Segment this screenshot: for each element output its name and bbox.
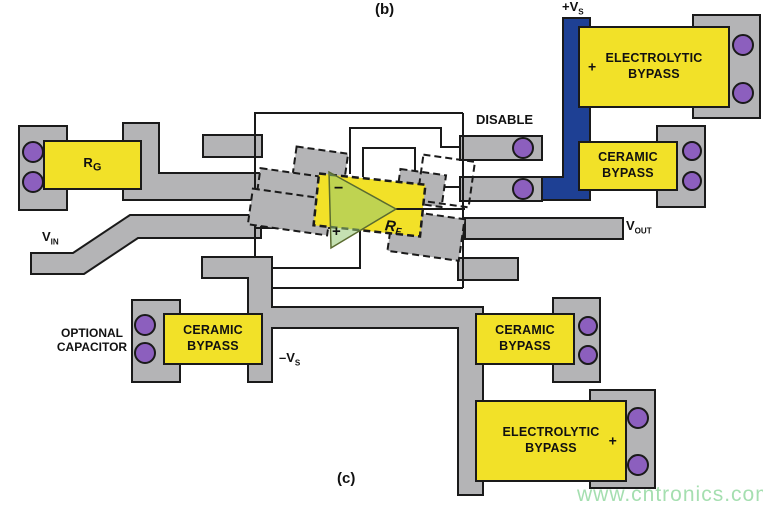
- top-small-pad: [203, 135, 262, 157]
- vout-label: VOUT: [626, 219, 652, 236]
- pcb-layout-figure: RF − + (b) +VS DISABLE VOUT VIN: [0, 0, 763, 511]
- electrolytic-bypass-top: + ELECTROLYTIC BYPASS: [578, 26, 730, 108]
- component-label: BYPASS: [628, 67, 680, 83]
- figure-label-c: (c): [337, 471, 355, 488]
- vin-sub: IN: [51, 238, 59, 247]
- disable-label: DISABLE: [476, 113, 533, 127]
- polarity-plus: +: [609, 432, 617, 450]
- ceramic-bypass-bottom-left: CERAMIC BYPASS: [163, 313, 263, 365]
- via: [513, 179, 533, 199]
- vin-text: V: [42, 229, 51, 244]
- negative-supply-trace: [202, 257, 483, 495]
- via: [513, 138, 533, 158]
- via: [579, 317, 597, 335]
- vout-trace: [465, 218, 623, 239]
- component-label: BYPASS: [499, 339, 551, 355]
- via: [579, 346, 597, 364]
- rg-resistor: RG: [43, 140, 142, 190]
- optional-line1: OPTIONAL: [61, 326, 123, 340]
- via: [733, 83, 753, 103]
- electrolytic-bypass-bottom: + ELECTROLYTIC BYPASS: [475, 400, 627, 482]
- via: [23, 172, 43, 192]
- positive-supply-text: +V: [562, 0, 578, 14]
- watermark: www.cntronics.com: [577, 483, 763, 506]
- component-label: BYPASS: [187, 339, 239, 355]
- via: [135, 315, 155, 335]
- via: [628, 455, 648, 475]
- ceramic-bypass-bottom-right: CERAMIC BYPASS: [475, 313, 575, 365]
- via: [733, 35, 753, 55]
- via: [628, 408, 648, 428]
- component-label: CERAMIC: [598, 150, 658, 166]
- polarity-plus: +: [588, 58, 596, 76]
- component-label: BYPASS: [602, 166, 654, 182]
- ceramic-bypass-right: CERAMIC BYPASS: [578, 141, 678, 191]
- component-label: ELECTROLYTIC: [502, 425, 599, 441]
- negative-supply-text: –V: [279, 350, 295, 365]
- vout-text: V: [626, 218, 635, 233]
- negative-supply-label: –VS: [279, 351, 300, 368]
- via: [683, 172, 701, 190]
- feedback-wire: [350, 128, 461, 174]
- positive-supply-sub: S: [578, 8, 583, 17]
- component-label: CERAMIC: [495, 323, 555, 339]
- component-label: ELECTROLYTIC: [605, 51, 702, 67]
- figure-label-b: (b): [375, 2, 394, 19]
- positive-supply-label: +VS: [562, 0, 584, 17]
- opamp-noninverting-sign: +: [332, 223, 341, 240]
- optional-capacitor-label: OPTIONALCAPACITOR: [46, 326, 138, 355]
- optional-line2: CAPACITOR: [57, 340, 127, 354]
- opamp-inverting-sign: −: [334, 180, 343, 197]
- vin-label: VIN: [42, 230, 59, 247]
- component-label: BYPASS: [525, 441, 577, 457]
- pad-below-vout: [458, 258, 518, 280]
- via: [683, 142, 701, 160]
- vout-sub: OUT: [635, 227, 652, 236]
- via: [135, 343, 155, 363]
- via: [23, 142, 43, 162]
- rg-label: RG: [83, 155, 101, 175]
- negative-supply-sub: S: [295, 359, 300, 368]
- component-label: CERAMIC: [183, 323, 243, 339]
